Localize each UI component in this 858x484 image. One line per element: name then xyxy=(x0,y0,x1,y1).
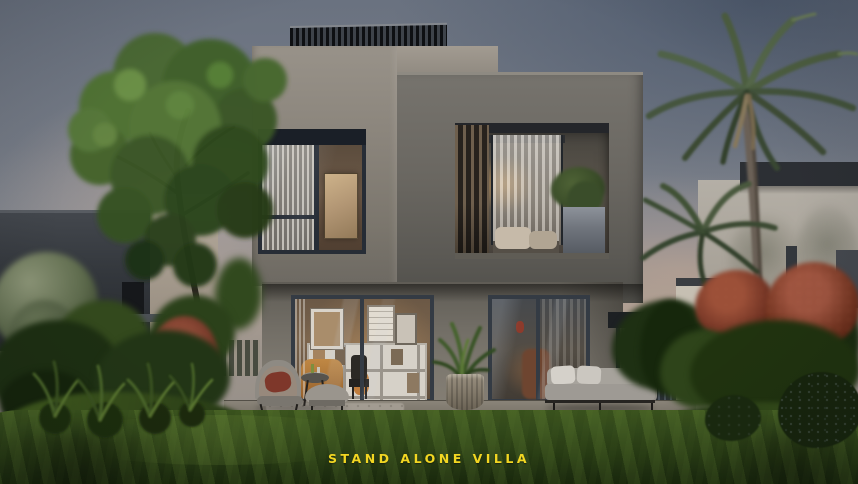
balcony xyxy=(455,123,609,259)
villa-caption: STAND ALONE VILLA xyxy=(0,451,858,466)
balcony-sill xyxy=(455,253,609,259)
side-table-bottle xyxy=(311,364,314,373)
balcony-wood-slats xyxy=(455,125,489,255)
balcony-cushion-1 xyxy=(495,227,531,249)
ottoman-base xyxy=(309,400,345,406)
speckled-bush-right xyxy=(778,372,858,448)
balcony-planter xyxy=(563,207,605,253)
sofa-pillow-2 xyxy=(577,365,602,384)
lounge-chair-group xyxy=(253,360,353,414)
side-table-top xyxy=(301,372,329,383)
sofa-pillow-1 xyxy=(550,365,575,385)
sofa-seat xyxy=(545,384,655,400)
side-table-glass xyxy=(317,367,320,373)
potted-plant-pot xyxy=(446,374,484,410)
villa-render-scene: STAND ALONE VILLA xyxy=(0,0,858,484)
foreground-plants-left xyxy=(20,318,220,428)
balcony-cushion-2 xyxy=(529,231,557,249)
